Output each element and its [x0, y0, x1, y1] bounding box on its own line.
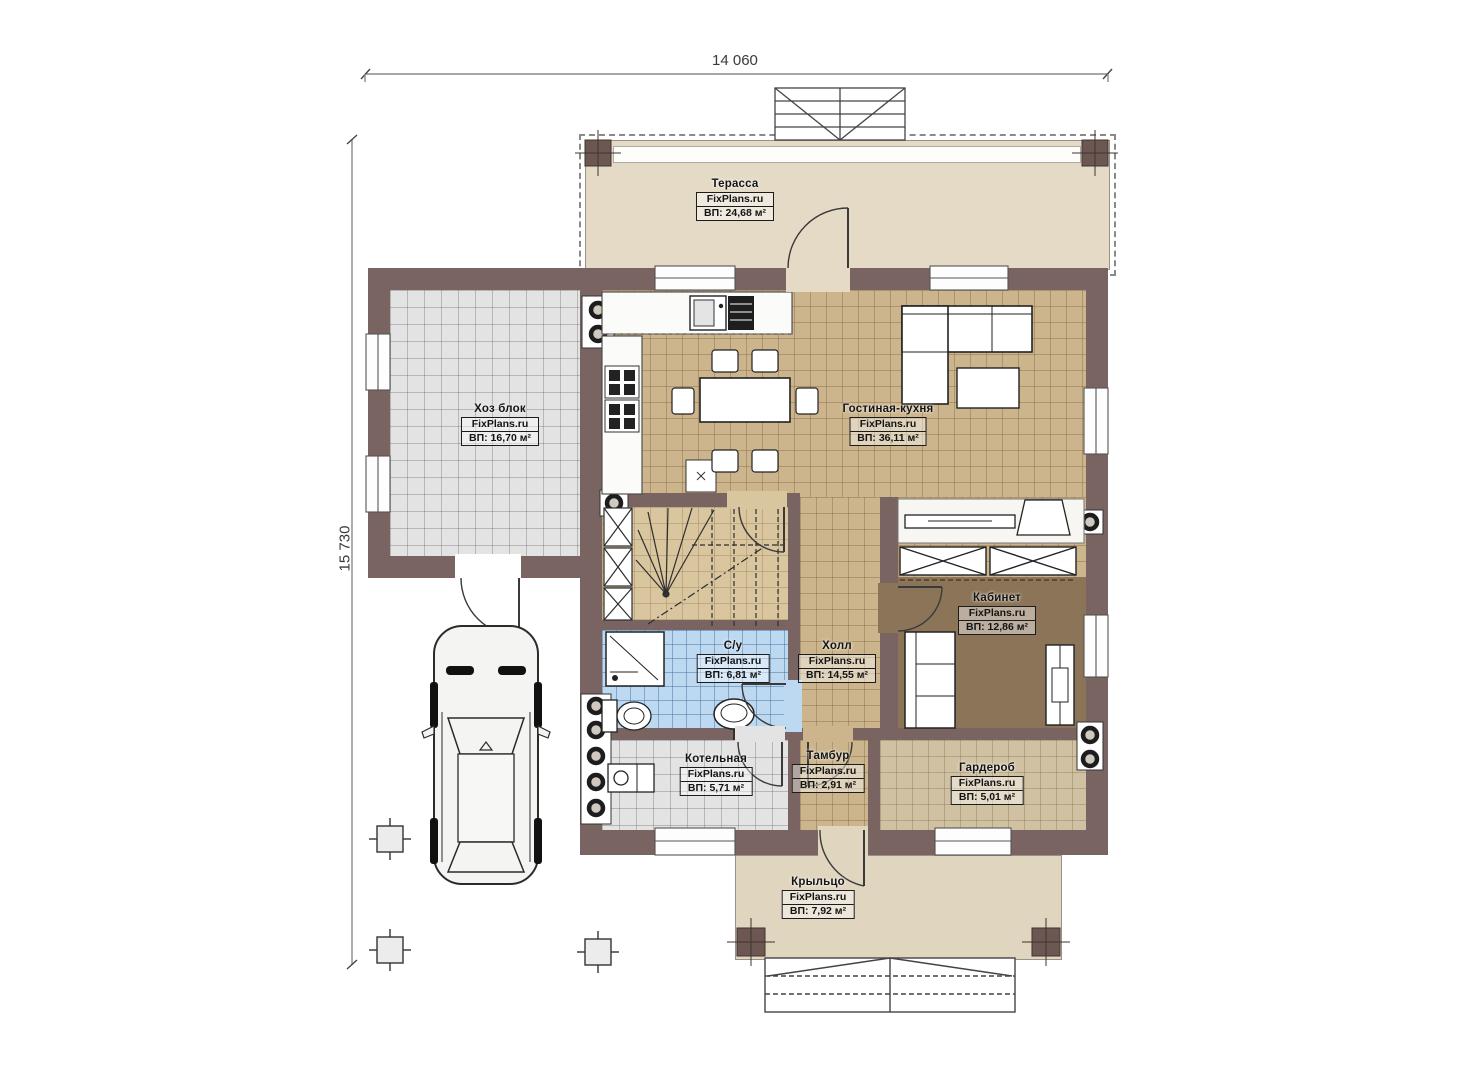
- room-area: ВП: 24,68 м²: [697, 207, 773, 220]
- car: [422, 626, 550, 884]
- room-area: ВП: 2,91 м²: [793, 779, 864, 792]
- wall-stairs-hall: [788, 493, 800, 740]
- room-label-hozblok: Хоз блок FixPlans.ru ВП: 16,70 м²: [461, 403, 539, 446]
- room-area: ВП: 5,01 м²: [952, 791, 1023, 804]
- brand-watermark: FixPlans.ru: [793, 765, 864, 779]
- terrace-ledge: [613, 146, 1081, 163]
- pier-marker: [577, 931, 619, 973]
- floor-hall: [800, 497, 880, 740]
- room-label-tambur: Тамбур FixPlans.ru ВП: 2,91 м²: [792, 750, 865, 793]
- room-area: ВП: 7,92 м²: [783, 905, 854, 918]
- porch-steps: [765, 958, 1015, 1012]
- room-label-hall: Холл FixPlans.ru ВП: 14,55 м²: [798, 640, 876, 683]
- brand-watermark: FixPlans.ru: [952, 777, 1023, 791]
- wall-stairs-bath: [602, 620, 788, 630]
- dimension-height-label: 15 730: [337, 519, 354, 579]
- room-name: Хоз блок: [461, 403, 539, 415]
- room-label-cabinet: Кабинет FixPlans.ru ВП: 12,86 м²: [958, 592, 1036, 635]
- floor-plan-canvas: 14 060 15 730 Терасса FixPlans.ru ВП: 24…: [0, 0, 1473, 1080]
- room-name: Котельная: [680, 753, 753, 765]
- room-area: ВП: 5,71 м²: [681, 782, 752, 795]
- room-name: Тамбур: [792, 750, 865, 762]
- mirror-left: [422, 726, 434, 738]
- wall-hall-cabinet: [880, 497, 898, 740]
- room-area: ВП: 36,11 м²: [850, 432, 925, 445]
- wall-above-stairs: [602, 493, 788, 507]
- brand-watermark: FixPlans.ru: [462, 418, 538, 432]
- brand-watermark: FixPlans.ru: [850, 418, 925, 432]
- pier-marker: [369, 818, 411, 860]
- room-label-porch: Крыльцо FixPlans.ru ВП: 7,92 м²: [782, 876, 855, 919]
- headlight: [498, 666, 526, 675]
- floor-stairs: [602, 507, 788, 620]
- brand-watermark: FixPlans.ru: [681, 768, 752, 782]
- room-label-bathroom: С/у FixPlans.ru ВП: 6,81 м²: [697, 640, 770, 683]
- wall-south-corridor: [602, 728, 1086, 740]
- brand-watermark: FixPlans.ru: [783, 891, 854, 905]
- dimension-width-label: 14 060: [712, 52, 758, 69]
- room-label-wardrobe: Гардероб FixPlans.ru ВП: 5,01 м²: [951, 762, 1024, 805]
- wall-tambur-wardrobe: [868, 740, 880, 830]
- brand-watermark: FixPlans.ru: [698, 655, 769, 669]
- room-area: ВП: 14,55 м²: [799, 669, 875, 682]
- floor-desk-zone: [898, 497, 1086, 577]
- brand-watermark: FixPlans.ru: [799, 655, 875, 669]
- room-area: ВП: 12,86 м²: [959, 621, 1035, 634]
- room-name: С/у: [697, 640, 770, 652]
- terrace-steps: [775, 88, 905, 140]
- room-name: Крыльцо: [782, 876, 855, 888]
- floor-living: [602, 290, 1086, 497]
- room-label-terrace: Терасса FixPlans.ru ВП: 24,68 м²: [696, 178, 774, 221]
- roof: [458, 754, 514, 842]
- room-area: ВП: 6,81 м²: [698, 669, 769, 682]
- room-label-boiler: Котельная FixPlans.ru ВП: 5,71 м²: [680, 753, 753, 796]
- pier-marker: [369, 929, 411, 971]
- room-name: Гардероб: [951, 762, 1024, 774]
- rear-glass: [448, 842, 524, 872]
- room-name: Кабинет: [958, 592, 1036, 604]
- brand-watermark: FixPlans.ru: [959, 607, 1035, 621]
- room-area: ВП: 16,70 м²: [462, 432, 538, 445]
- mirror-right: [538, 726, 550, 738]
- room-label-living: Гостиная-кухня FixPlans.ru ВП: 36,11 м²: [843, 403, 934, 446]
- brand-watermark: FixPlans.ru: [697, 193, 773, 207]
- headlight: [446, 666, 474, 675]
- room-name: Терасса: [696, 178, 774, 190]
- room-name: Гостиная-кухня: [843, 403, 934, 415]
- room-name: Холл: [798, 640, 876, 652]
- windshield: [448, 718, 524, 754]
